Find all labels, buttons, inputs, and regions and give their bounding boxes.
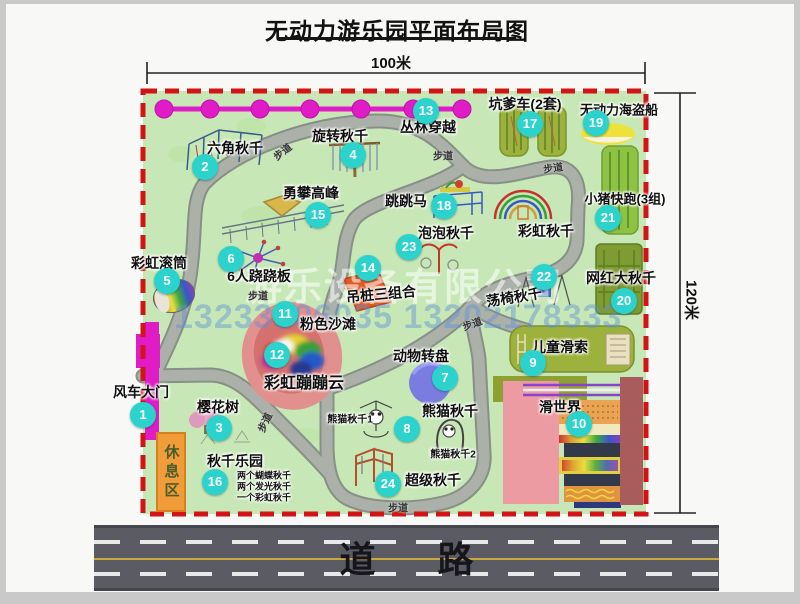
attraction-label: 跳跳马 <box>385 191 427 211</box>
attraction-badge: 23 <box>396 234 422 260</box>
extra-label: 一个彩虹秋千 <box>237 491 291 504</box>
attraction-badge: 16 <box>202 469 228 495</box>
attraction-label: 泡泡秋千 <box>418 223 474 243</box>
attraction-label: 彩虹蹦蹦云 <box>264 369 344 393</box>
attraction-badge: 5 <box>154 268 180 294</box>
page: 无动力游乐园平面布局图 100米 120米 <box>6 4 794 592</box>
walkway-label: 步道 <box>248 288 268 303</box>
attraction-label: 风车大门 <box>113 382 169 402</box>
attraction-badge: 24 <box>375 471 401 497</box>
screenshot-root: { "page": { "title": "无动力游乐园平面布局图", "wid… <box>0 0 800 600</box>
attraction-label: 粉色沙滩 <box>300 314 356 334</box>
walkway-label: 步道 <box>388 500 408 515</box>
extra-label: 彩虹秋千 <box>518 221 574 241</box>
attraction-badge: 12 <box>264 342 290 368</box>
attraction-label: 超级秋千 <box>405 470 461 490</box>
rest-area-box: 休息区 <box>156 432 186 512</box>
road: 道 路 <box>94 525 719 591</box>
attraction-badge: 22 <box>531 264 557 290</box>
page-title: 无动力游乐园平面布局图 <box>265 12 529 46</box>
attraction-badge: 14 <box>355 255 381 281</box>
attraction-badge: 19 <box>583 110 609 136</box>
extra-label: 熊猫秋千1 <box>327 411 373 426</box>
attraction-badge: 2 <box>192 154 218 180</box>
attraction-badge: 15 <box>305 202 331 228</box>
attraction-badge: 6 <box>218 246 244 272</box>
attraction-label: 动物转盘 <box>393 346 449 366</box>
attraction-badge: 3 <box>206 415 232 441</box>
attraction-label: 樱花树 <box>197 397 239 417</box>
attraction-badge: 18 <box>431 193 457 219</box>
attraction-label: 勇攀高峰 <box>283 183 339 203</box>
watermark-phone: 13233806035 13202178333 <box>174 298 622 337</box>
width-dimension-label: 100米 <box>371 52 411 73</box>
attraction-label: 熊猫秋千 <box>422 401 478 421</box>
attraction-badge: 17 <box>517 111 543 137</box>
height-dimension-label: 120米 <box>682 280 703 320</box>
attraction-badge: 4 <box>340 142 366 168</box>
attraction-badge: 10 <box>566 411 592 437</box>
rest-area-label: 休息区 <box>161 444 182 501</box>
attraction-badge: 9 <box>520 350 546 376</box>
attraction-badge: 20 <box>611 288 637 314</box>
road-label: 道 路 <box>313 531 499 583</box>
extra-label: 熊猫秋千2 <box>430 446 476 461</box>
title-underline <box>278 37 516 40</box>
attraction-badge: 13 <box>413 98 439 124</box>
attraction-badge: 8 <box>394 416 420 442</box>
attraction-label: 网红大秋千 <box>586 268 656 288</box>
attraction-badge: 21 <box>595 205 621 231</box>
attraction-badge: 11 <box>272 301 298 327</box>
walkway-label: 步道 <box>433 148 453 163</box>
attraction-badge: 7 <box>432 365 458 391</box>
attraction-label: 六角秋千 <box>207 138 263 158</box>
attraction-badge: 1 <box>130 402 156 428</box>
walkway-label: 步道 <box>542 158 564 176</box>
attraction-label: 小猪快跑(3组) <box>585 189 666 208</box>
